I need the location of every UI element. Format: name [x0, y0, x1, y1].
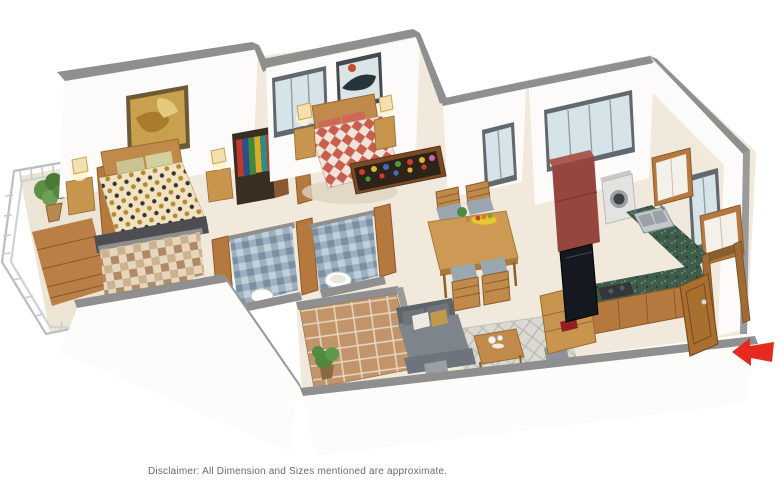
plant-pot: [46, 203, 62, 222]
window: [482, 122, 517, 188]
dining-chair: [450, 263, 480, 311]
television: [560, 244, 598, 322]
table-lamp: [379, 95, 393, 112]
dining-chair: [480, 257, 510, 305]
floor-plan-canvas: [0, 0, 780, 490]
table-lamp: [297, 103, 312, 120]
table-lamp: [72, 157, 88, 174]
wall-cabinet: [652, 148, 693, 206]
door-knob: [702, 300, 707, 305]
table-lamp: [211, 148, 226, 164]
bathroom-3: [296, 204, 396, 298]
table-plant: [457, 207, 467, 217]
floor-plan-render: Disclaimer: All Dimension and Sizes ment…: [0, 0, 780, 490]
disclaimer-text: Disclaimer: All Dimension and Sizes ment…: [148, 466, 447, 477]
refrigerator-front: [552, 156, 600, 252]
